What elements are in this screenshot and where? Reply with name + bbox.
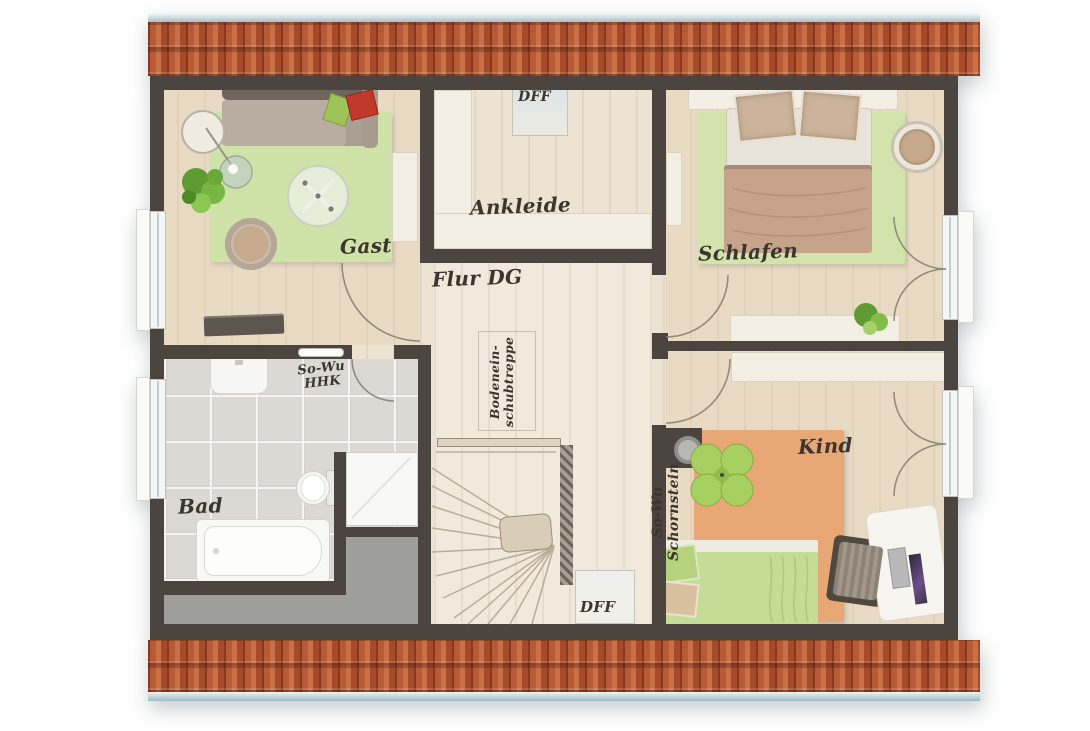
wall-outer-left-3 <box>150 497 164 640</box>
schlafen-closet <box>666 152 682 226</box>
shower <box>346 452 418 526</box>
stair-handrail <box>437 438 561 447</box>
gast-lowboard <box>204 314 285 337</box>
room-label-gast: Gast <box>340 233 393 259</box>
bathtub-basin <box>204 526 322 576</box>
annotation-dff-top: DFF <box>518 90 551 104</box>
bed-pillow-right <box>798 89 862 142</box>
storage-area-shower <box>346 537 418 595</box>
wall-shower-bottom <box>346 527 418 537</box>
annotation-sowu-schornstein: So-Wu Schornstein <box>650 454 682 570</box>
window-schlafen-glass <box>949 217 951 318</box>
ankleide-wardrobe-bottom <box>434 213 652 249</box>
schlafen-sideboard <box>730 315 900 343</box>
wall-ankleide-bottom <box>420 249 666 263</box>
room-label-flur: Flur DG <box>432 264 523 291</box>
window-bad-glass <box>157 381 159 497</box>
wall-ankleide-left <box>420 90 434 263</box>
wall-outer-top <box>150 76 958 90</box>
pouf-chair-seat <box>233 226 269 262</box>
wall-outer-bottom <box>150 624 958 640</box>
stair-landing-post <box>499 513 554 553</box>
window-gast-glass <box>157 213 159 327</box>
wall-schlafen-kind <box>652 341 944 351</box>
annotation-sowu-schornstein-line1: So-Wu <box>650 454 666 570</box>
room-label-kind: Kind <box>798 433 854 459</box>
room-label-schlafen: Schlafen <box>698 238 799 265</box>
coffee-table <box>287 165 349 227</box>
roof-gutter-bottom <box>148 692 980 701</box>
window-sill-left-bad <box>136 377 150 501</box>
storage-area-bottom <box>164 595 418 624</box>
wall-shower-left <box>334 452 346 595</box>
round-chair-cushion <box>899 129 935 165</box>
stair-hatch-wall <box>560 445 573 585</box>
window-sill-right-kind <box>958 386 974 499</box>
roof-tiles-top <box>148 22 980 76</box>
wall-outer-right-1 <box>944 76 958 215</box>
wall-outer-right-3 <box>944 497 958 640</box>
sink-faucet <box>235 360 243 365</box>
annotation-sowu-schornstein-line2: Schornstein <box>666 454 682 570</box>
annotation-bodeneinschubtreppe: Bodenein- schubtreppe <box>488 336 516 428</box>
toilet <box>296 471 330 505</box>
wall-ankleide-right <box>652 90 666 275</box>
annotation-bodeneinschubtreppe-line2: schubtreppe <box>502 336 516 428</box>
roof-tiles-bottom <box>148 640 980 692</box>
wall-bad-right <box>418 345 431 624</box>
floorplan-canvas: Gast Ankleide Schlafen Flur DG Bad Kind … <box>0 0 1090 731</box>
bed-pillow-left <box>734 89 799 143</box>
desk-chair <box>832 541 883 601</box>
annotation-dff-bottom: DFF <box>580 600 615 614</box>
plan-sheet: Gast Ankleide Schlafen Flur DG Bad Kind … <box>0 0 1090 731</box>
floor-plan: Gast Ankleide Schlafen Flur DG Bad Kind … <box>150 76 958 640</box>
annotation-bodeneinschubtreppe-line1: Bodenein- <box>488 336 502 428</box>
floor-lamp-base <box>181 110 225 154</box>
room-label-ankleide: Ankleide <box>470 192 572 220</box>
towel-radiator <box>298 348 344 357</box>
room-label-bad: Bad <box>178 493 224 519</box>
wall-kind-west-block <box>652 333 668 359</box>
wall-outer-right-2 <box>944 320 958 390</box>
window-sill-left-gast <box>136 209 150 331</box>
window-kind-glass <box>949 392 951 495</box>
wall-outer-left-1 <box>150 76 164 213</box>
wall-bathtub-bottom <box>150 581 346 595</box>
kind-wardrobe <box>731 352 945 382</box>
gast-sideboard <box>392 152 418 242</box>
window-sill-right-schlafen <box>958 211 974 323</box>
